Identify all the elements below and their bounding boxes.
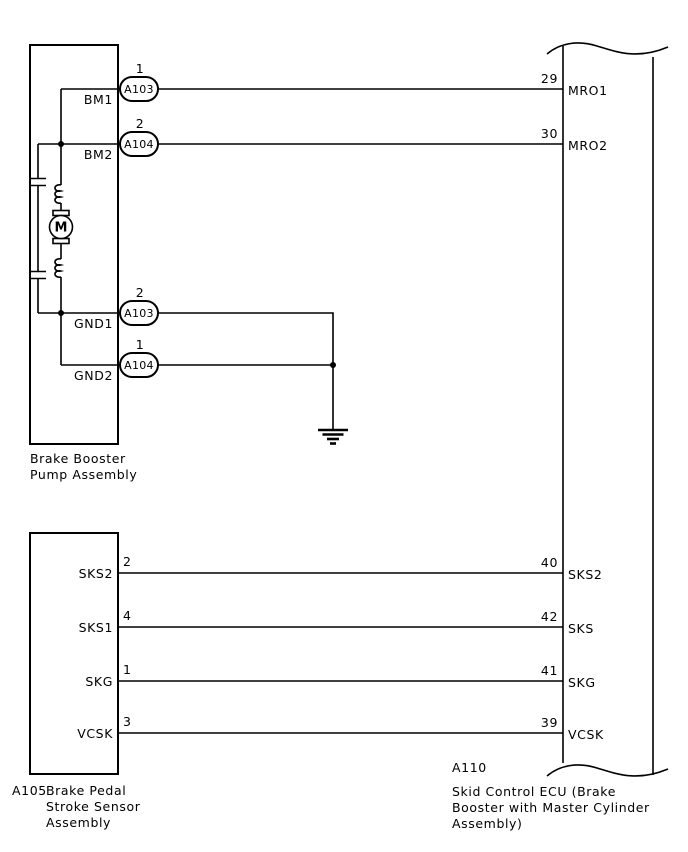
ecu-caption-line1: Skid Control ECU (Brake bbox=[452, 784, 616, 799]
terminal-label-mro1: MRO1 bbox=[568, 83, 608, 98]
terminal-label-gnd2: GND2 bbox=[74, 368, 113, 383]
terminal-label-skg: SKG bbox=[85, 674, 113, 689]
terminal-label-sks1: SKS1 bbox=[79, 620, 113, 635]
connector-label: A103 bbox=[124, 307, 154, 320]
canvas-background bbox=[0, 0, 688, 852]
sensor-caption-line2: Stroke Sensor bbox=[46, 799, 141, 814]
motor-label: M bbox=[55, 221, 68, 236]
sensor-caption-line1: Brake Pedal bbox=[46, 783, 126, 798]
pin-number: 40 bbox=[541, 555, 558, 570]
terminal-label-mro2: MRO2 bbox=[568, 138, 608, 153]
ecu-code: A110 bbox=[452, 760, 487, 775]
pin-number: 29 bbox=[541, 71, 558, 86]
terminal-label-gnd1: GND1 bbox=[74, 316, 113, 331]
pin-number: 39 bbox=[541, 715, 558, 730]
terminal-label-bm1: BM1 bbox=[84, 92, 113, 107]
pin-number: 42 bbox=[541, 609, 558, 624]
pin-number: 1 bbox=[123, 662, 132, 677]
terminal-label-sks2: SKS2 bbox=[79, 566, 113, 581]
terminal-label-sks2: SKS2 bbox=[568, 567, 602, 582]
pin-number: 1 bbox=[136, 61, 145, 76]
terminal-label-skg: SKG bbox=[568, 675, 596, 690]
terminal-label-bm2: BM2 bbox=[84, 147, 113, 162]
sensor-caption-line3: Assembly bbox=[46, 815, 111, 830]
pin-number: 3 bbox=[123, 714, 132, 729]
pin-number: 1 bbox=[136, 337, 145, 352]
wiring-diagram: M A103 A104 A103 A104 1 2 2 1 BM1 BM2 GN… bbox=[0, 0, 688, 852]
pin-number: 4 bbox=[123, 608, 132, 623]
terminal-label-sks: SKS bbox=[568, 621, 594, 636]
pin-number: 2 bbox=[136, 116, 145, 131]
terminal-label-vcsk: VCSK bbox=[77, 726, 113, 741]
connector-label: A103 bbox=[124, 83, 154, 96]
connector-label: A104 bbox=[124, 359, 154, 372]
wiring-diagram-page: M A103 A104 A103 A104 1 2 2 1 BM1 BM2 GN… bbox=[0, 0, 688, 852]
sensor-code: A105 bbox=[12, 783, 47, 798]
ecu-caption-line3: Assembly) bbox=[452, 816, 523, 831]
pump-caption-line2: Pump Assembly bbox=[30, 467, 137, 482]
terminal-label-vcsk: VCSK bbox=[568, 727, 604, 742]
pin-number: 2 bbox=[123, 554, 132, 569]
ecu-caption-line2: Booster with Master Cylinder bbox=[452, 800, 650, 815]
pin-number: 30 bbox=[541, 126, 558, 141]
pin-number: 41 bbox=[541, 663, 558, 678]
connector-label: A104 bbox=[124, 138, 154, 151]
pump-caption-line1: Brake Booster bbox=[30, 451, 126, 466]
pin-number: 2 bbox=[136, 285, 145, 300]
